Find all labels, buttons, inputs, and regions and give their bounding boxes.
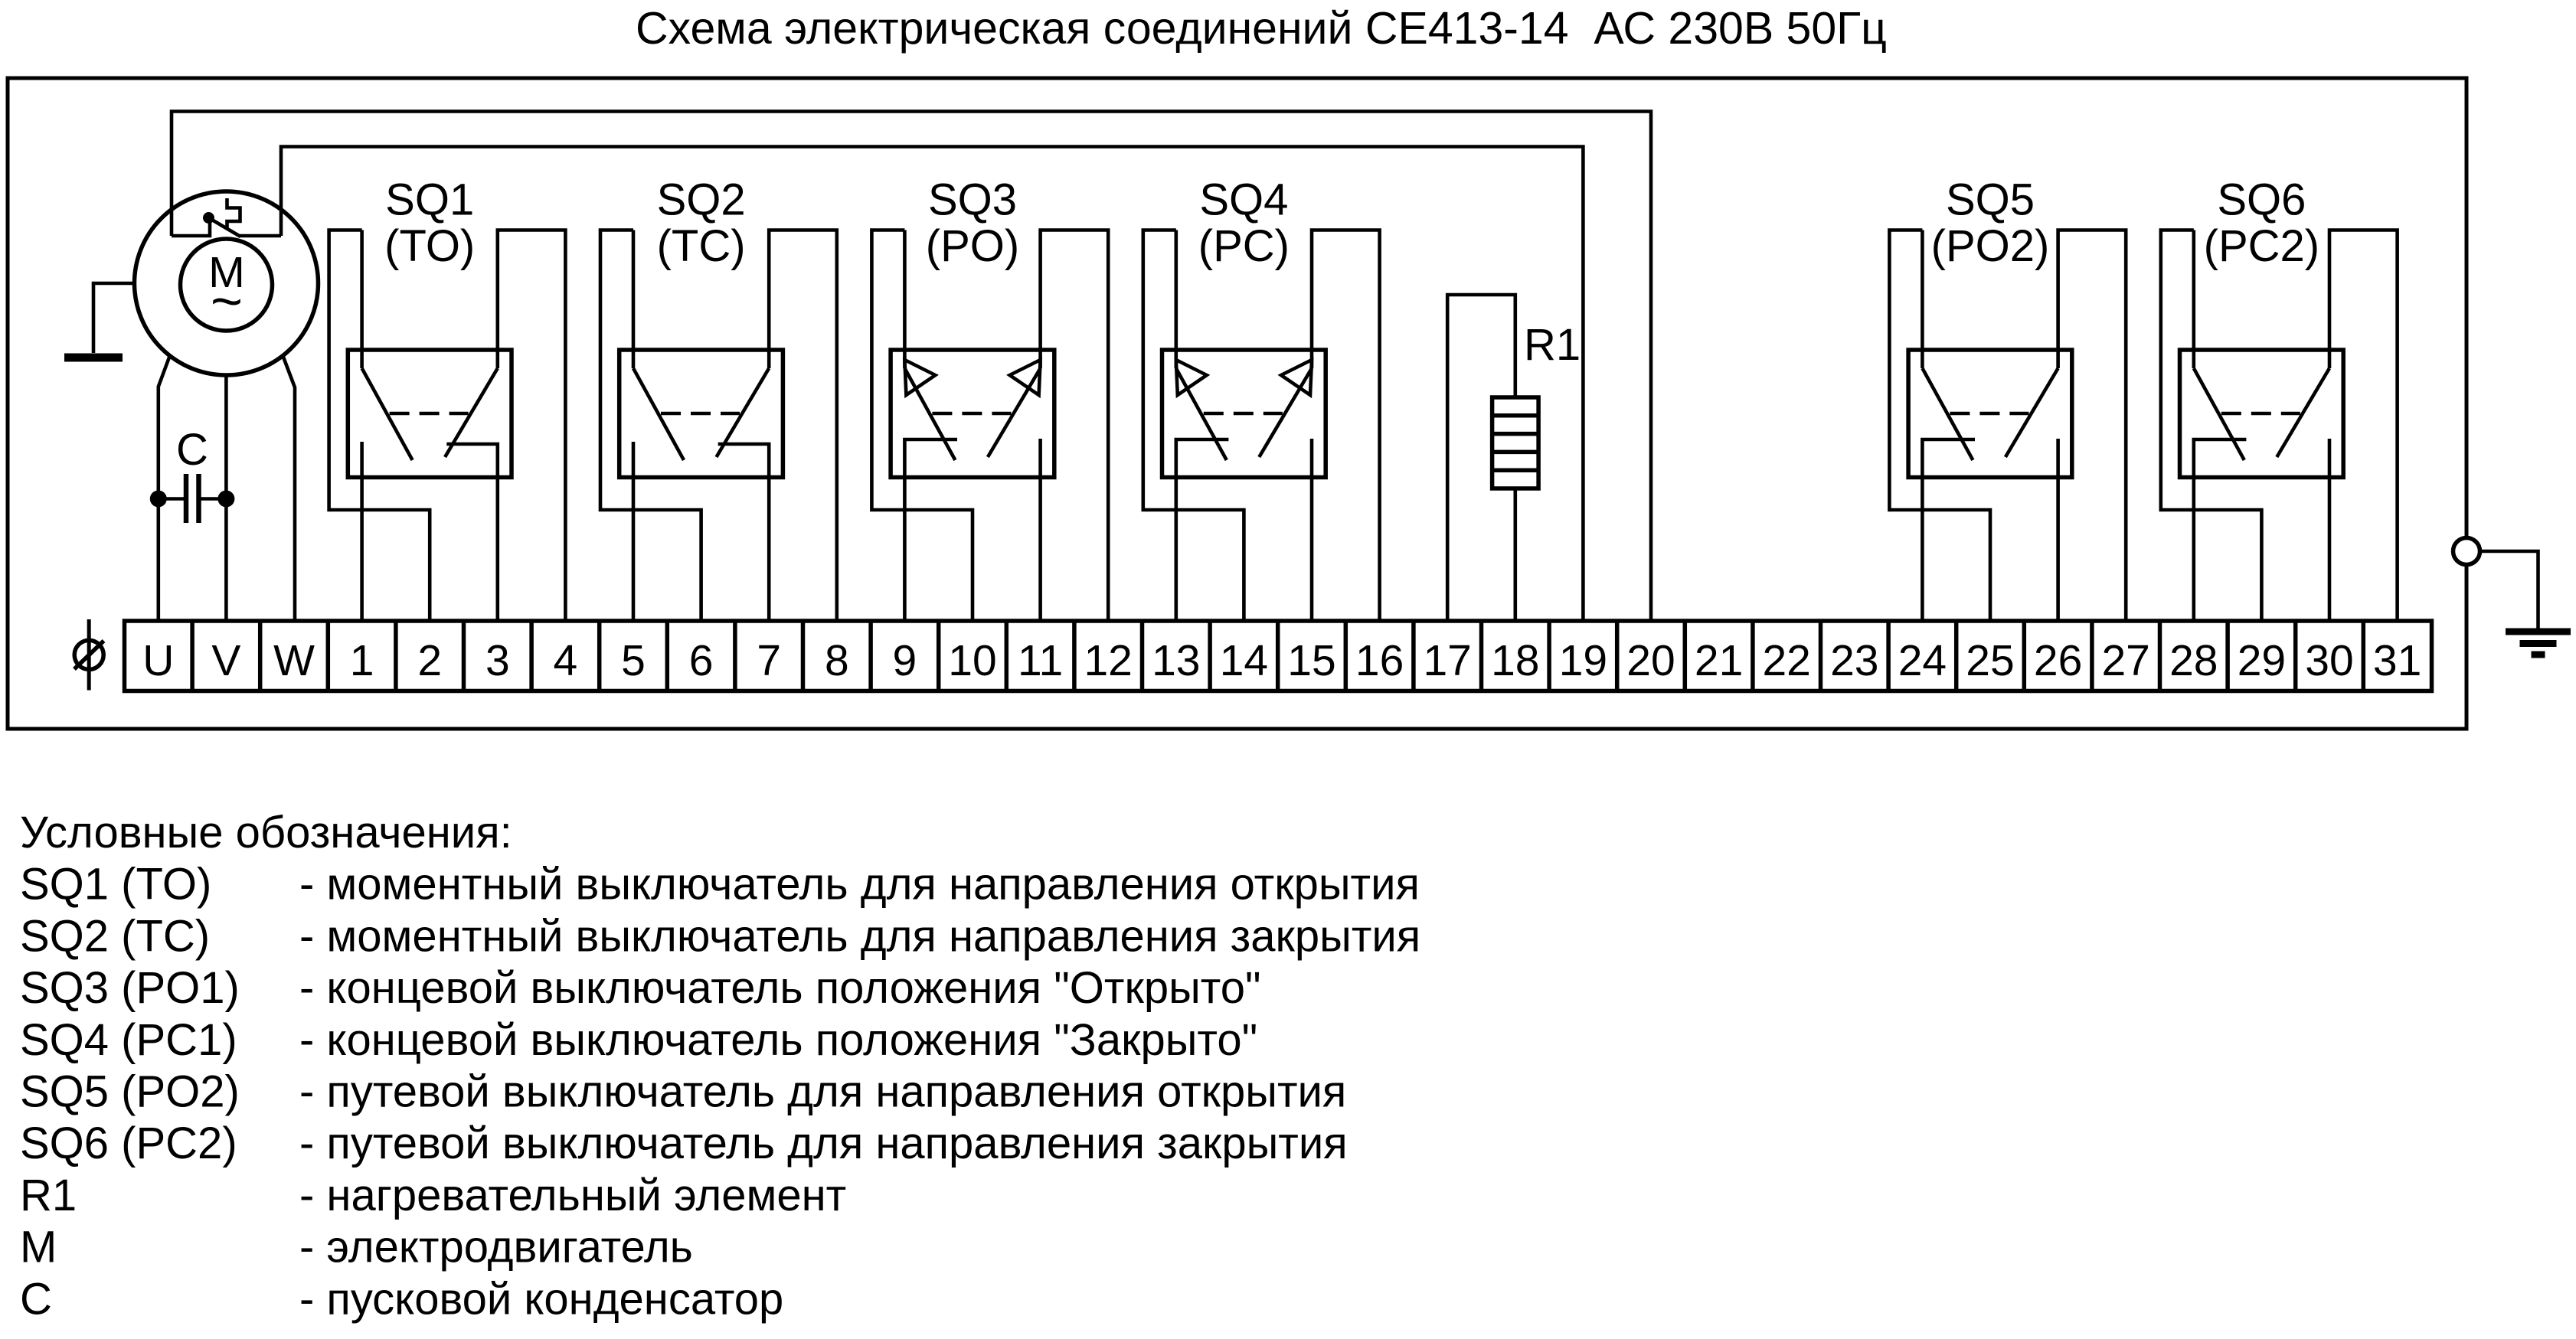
svg-text:SQ2 (TC): SQ2 (TC): [20, 911, 210, 961]
svg-text:31: 31: [2373, 636, 2421, 685]
svg-text:7: 7: [757, 636, 781, 685]
svg-text:30: 30: [2305, 636, 2353, 685]
svg-text:18: 18: [1491, 636, 1539, 685]
svg-text:- электродвигатель: - электродвигатель: [299, 1223, 693, 1272]
svg-text:- путевой выключатель для напр: - путевой выключатель для направления от…: [299, 1067, 1346, 1117]
svg-text:22: 22: [1762, 636, 1810, 685]
svg-text:12: 12: [1084, 636, 1132, 685]
svg-text:SQ3 (PO1): SQ3 (PO1): [20, 963, 240, 1013]
svg-text:25: 25: [1966, 636, 2014, 685]
svg-text:19: 19: [1559, 636, 1607, 685]
svg-text:- концевой выключатель положен: - концевой выключатель положения "Закрыт…: [299, 1015, 1257, 1065]
svg-text:3: 3: [485, 636, 510, 685]
svg-text:SQ5: SQ5: [1946, 175, 2035, 225]
svg-text:20: 20: [1626, 636, 1675, 685]
svg-text:13: 13: [1152, 636, 1200, 685]
svg-text:29: 29: [2238, 636, 2286, 685]
svg-text:- нагревательный элемент: - нагревательный элемент: [299, 1171, 846, 1220]
svg-text:4: 4: [554, 636, 578, 685]
svg-text:(TC): (TC): [657, 221, 746, 271]
svg-text:17: 17: [1423, 636, 1471, 685]
svg-text:21: 21: [1695, 636, 1743, 685]
svg-text:SQ4 (PC1): SQ4 (PC1): [20, 1015, 237, 1065]
svg-text:23: 23: [1830, 636, 1878, 685]
svg-text:2: 2: [417, 636, 442, 685]
svg-text:- путевой выключатель для напр: - путевой выключатель для направления за…: [299, 1119, 1348, 1168]
svg-text:U: U: [142, 636, 174, 685]
svg-text:15: 15: [1287, 636, 1335, 685]
svg-text:W: W: [273, 636, 315, 685]
svg-text:C: C: [176, 425, 208, 475]
svg-text:(PO): (PO): [926, 221, 1019, 271]
svg-text:SQ6: SQ6: [2217, 175, 2306, 225]
svg-text:Схема электрическая соединений: Схема электрическая соединений СЕ413-14 …: [636, 3, 1887, 54]
svg-text:SQ6 (PC2): SQ6 (PC2): [20, 1119, 237, 1168]
svg-text:16: 16: [1355, 636, 1404, 685]
svg-text:(PC2): (PC2): [2204, 221, 2319, 271]
svg-text:- пусковой конденсатор: - пусковой конденсатор: [299, 1274, 783, 1324]
svg-text:(PC): (PC): [1198, 221, 1290, 271]
svg-text:9: 9: [893, 636, 917, 685]
svg-text:28: 28: [2169, 636, 2218, 685]
svg-text:8: 8: [825, 636, 849, 685]
svg-text:26: 26: [2034, 636, 2082, 685]
svg-text:- концевой выключатель положен: - концевой выключатель положения "Открыт…: [299, 963, 1261, 1013]
svg-text:- моментный выключатель для на: - моментный выключатель для направления …: [299, 860, 1420, 910]
svg-text:V: V: [211, 636, 240, 685]
svg-text:SQ2: SQ2: [657, 175, 746, 225]
svg-text:1: 1: [350, 636, 374, 685]
svg-text:5: 5: [621, 636, 646, 685]
svg-text:6: 6: [689, 636, 714, 685]
svg-text:C: C: [20, 1274, 52, 1324]
svg-text:(TO): (TO): [384, 221, 475, 271]
svg-text:10: 10: [948, 636, 996, 685]
svg-text:11: 11: [1018, 636, 1063, 685]
svg-text:~: ~: [211, 271, 243, 332]
svg-text:27: 27: [2101, 636, 2149, 685]
svg-text:- моментный выключатель для на: - моментный выключатель для направления …: [299, 911, 1420, 961]
svg-text:(PO2): (PO2): [1931, 221, 2050, 271]
svg-text:SQ4: SQ4: [1199, 175, 1288, 225]
svg-text:Условные обозначения:: Условные обозначения:: [20, 808, 512, 857]
svg-text:SQ1: SQ1: [385, 175, 474, 225]
svg-text:R1: R1: [20, 1171, 77, 1220]
svg-text:24: 24: [1898, 636, 1947, 685]
svg-text:14: 14: [1220, 636, 1268, 685]
svg-text:R1: R1: [1524, 320, 1581, 370]
svg-text:SQ3: SQ3: [928, 175, 1017, 225]
svg-text:SQ1 (TO): SQ1 (TO): [20, 860, 211, 910]
svg-text:SQ5 (PO2): SQ5 (PO2): [20, 1067, 240, 1117]
svg-text:M: M: [20, 1223, 57, 1272]
